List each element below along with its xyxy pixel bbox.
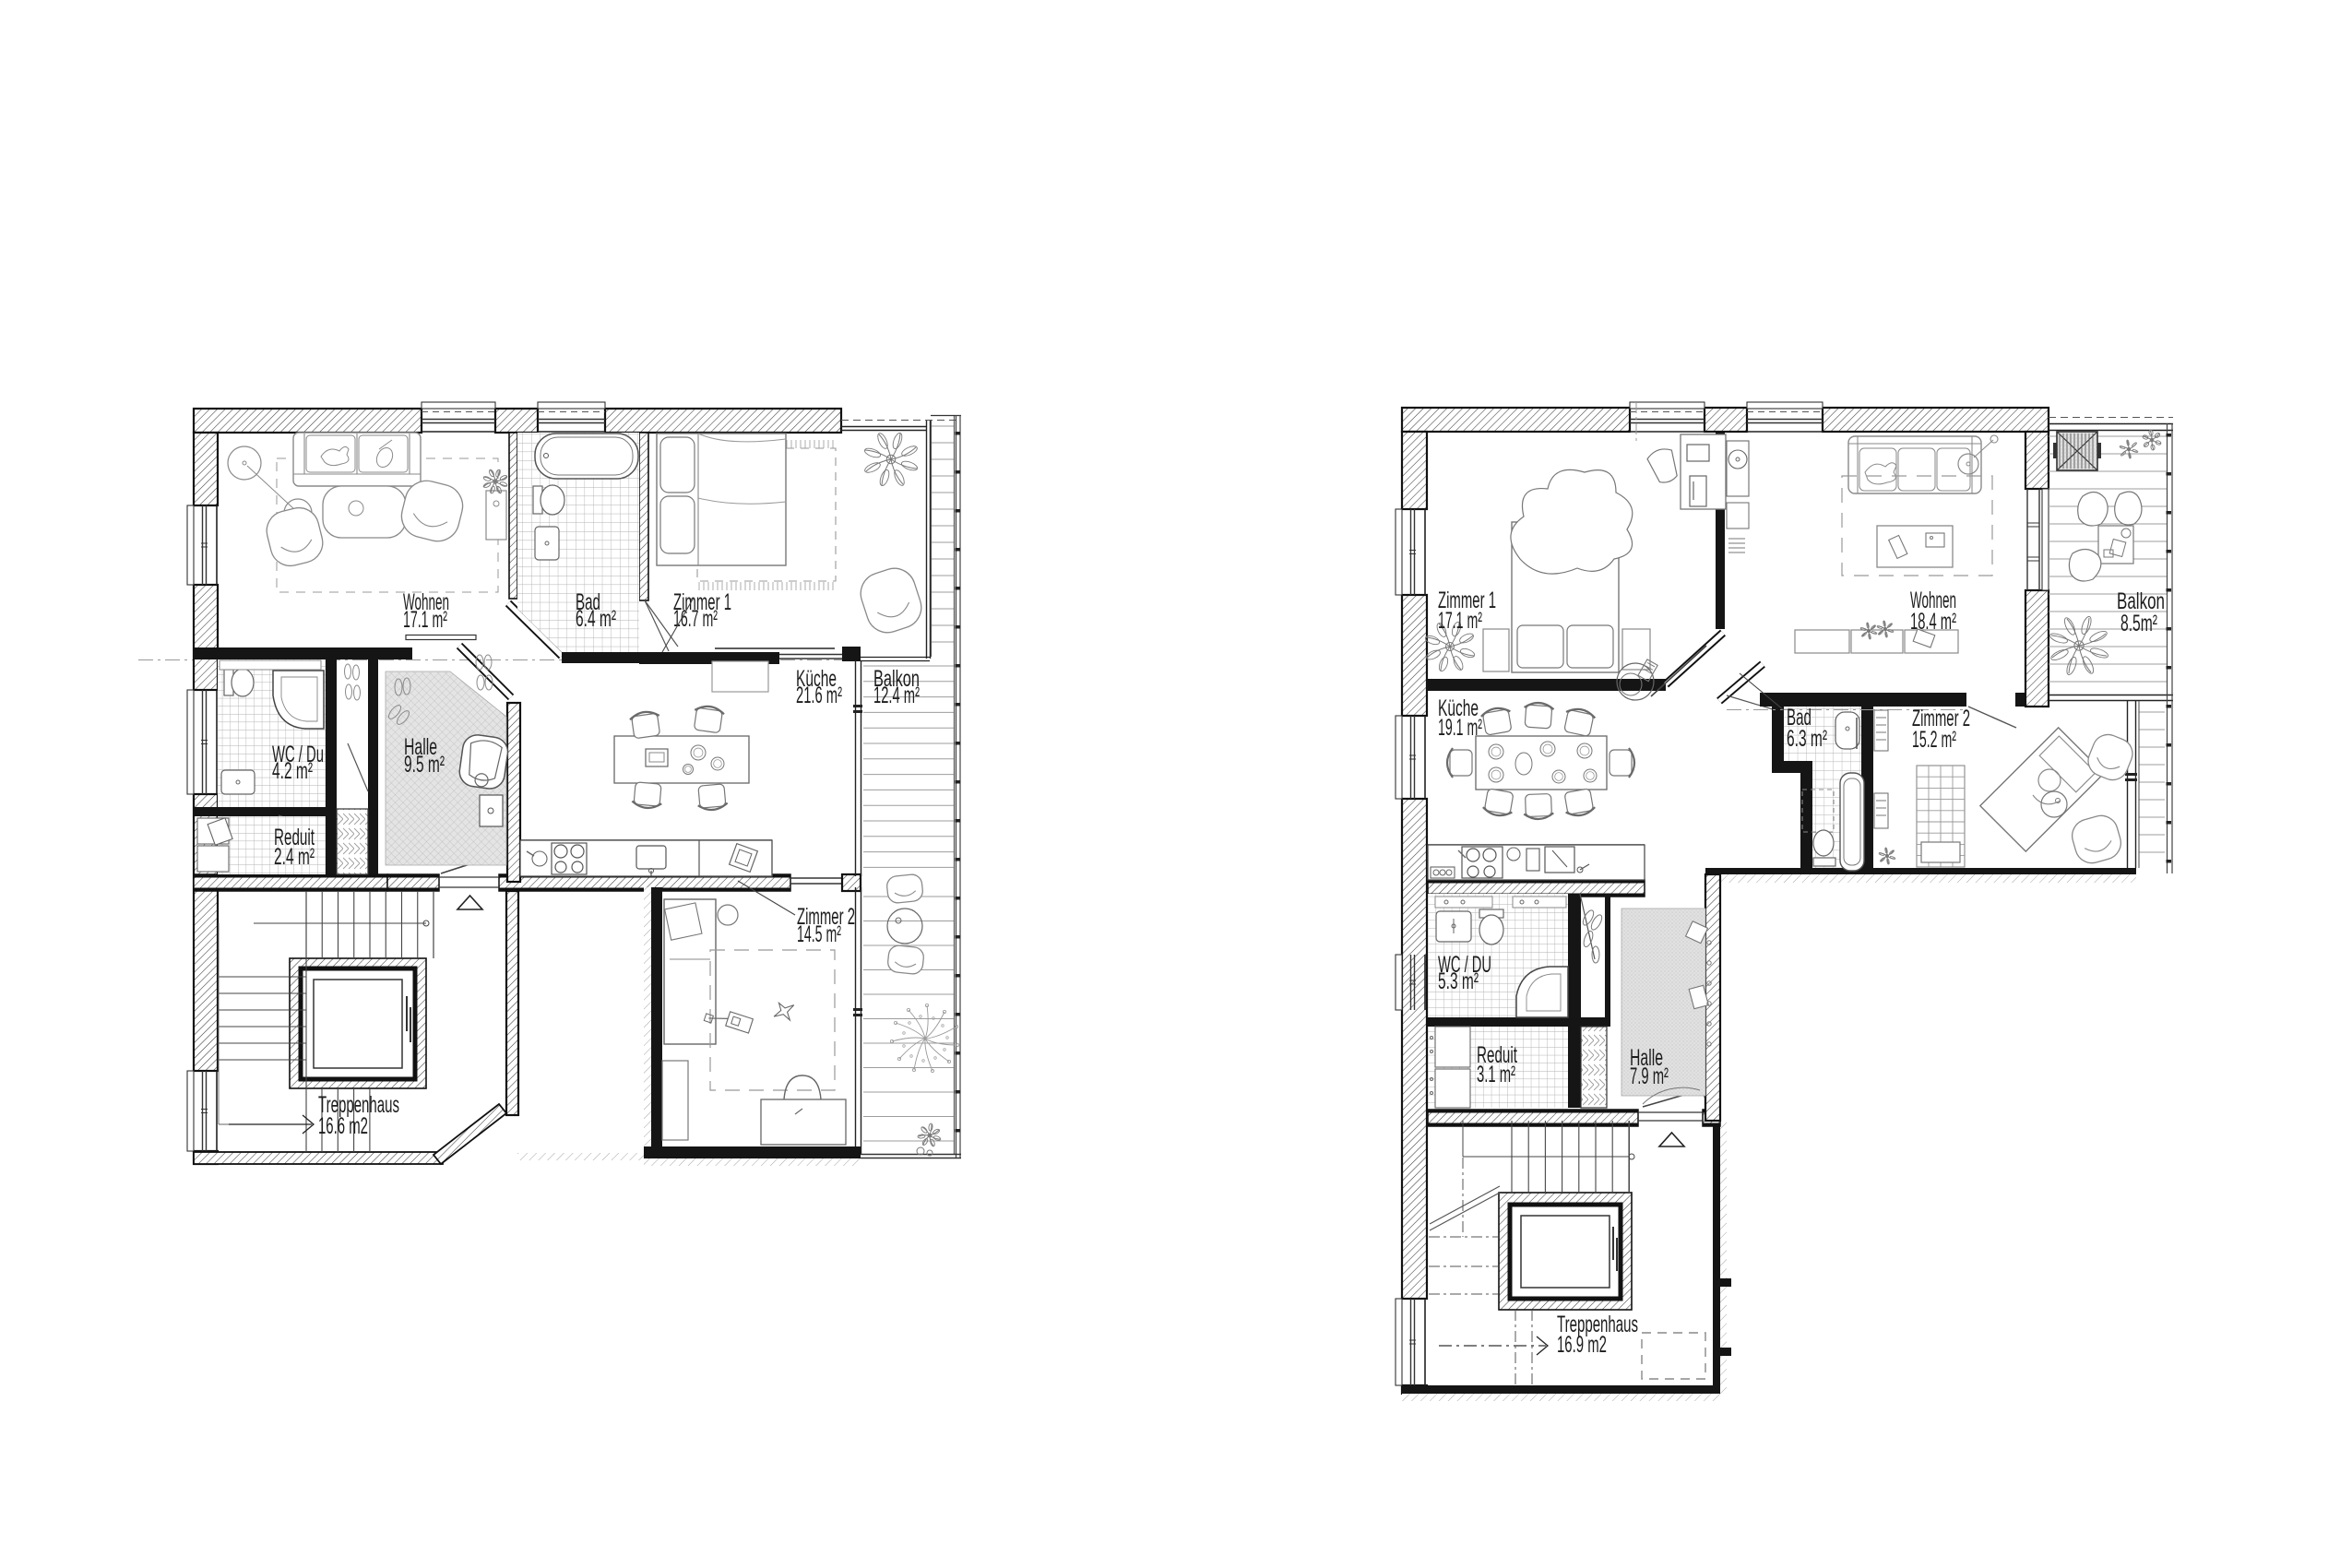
svg-text:16.7 m²: 16.7 m²	[673, 606, 718, 632]
svg-text:17.1 m²: 17.1 m²	[403, 607, 447, 633]
svg-text:14.5 m²: 14.5 m²	[797, 921, 841, 947]
svg-text:19.1 m²: 19.1 m²	[1438, 715, 1482, 741]
svg-text:16.9 m2: 16.9 m2	[1557, 1332, 1607, 1358]
svg-text:4.2 m²: 4.2 m²	[272, 758, 313, 784]
svg-text:21.6 m²: 21.6 m²	[796, 683, 842, 708]
svg-text:17.1 m²: 17.1 m²	[1438, 608, 1482, 634]
svg-text:16.6 m2: 16.6 m2	[318, 1113, 368, 1139]
svg-text:3.1 m²: 3.1 m²	[1477, 1062, 1515, 1087]
svg-text:8.5m²: 8.5m²	[2120, 611, 2157, 636]
svg-text:9.5 m²: 9.5 m²	[404, 752, 445, 778]
svg-text:6.3 m²: 6.3 m²	[1787, 726, 1827, 752]
svg-text:6.4 m²: 6.4 m²	[576, 606, 616, 632]
svg-text:18.4 m²: 18.4 m²	[1910, 609, 1956, 635]
svg-text:7.9 m²: 7.9 m²	[1630, 1063, 1669, 1089]
svg-text:12.4 m²: 12.4 m²	[873, 683, 920, 708]
svg-text:2.4 m²: 2.4 m²	[274, 844, 315, 870]
svg-text:5.3 m²: 5.3 m²	[1438, 968, 1479, 994]
svg-text:15.2 m²: 15.2 m²	[1912, 727, 1956, 753]
